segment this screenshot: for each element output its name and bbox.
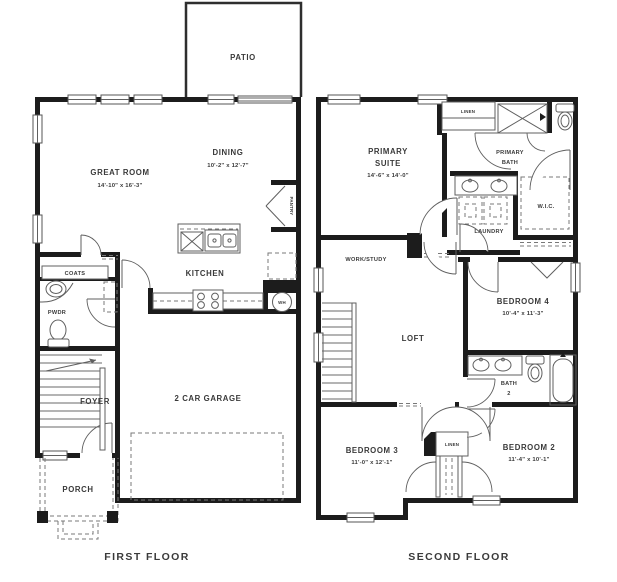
bath2-door: [467, 379, 495, 407]
powder-label: PWDR: [48, 310, 66, 316]
shower-door: [527, 133, 545, 151]
bath2-label-1: BATH: [501, 381, 517, 387]
bedroom4-label: BEDROOM 4: [497, 297, 550, 306]
bath2-label-2: 2: [507, 391, 510, 397]
garage-label: 2 CAR GARAGE: [175, 394, 242, 403]
primary-bath-label-2: BATH: [502, 160, 518, 166]
porch-step: [58, 521, 98, 539]
primary-suite-dims: 14'-6" x 14'-0": [367, 173, 409, 179]
linen-lower-label: LINEN: [445, 442, 459, 447]
dining-label: DINING: [213, 148, 244, 157]
water-heater-label: WH: [278, 300, 286, 305]
garage-entry-door: [122, 260, 150, 288]
primary-suite-door: [420, 198, 457, 235]
primary-bath-label-1: PRIMARY: [496, 150, 524, 156]
stairs-second-floor: [322, 303, 356, 402]
patio-label: PATIO: [230, 53, 256, 62]
bathtub-icon: [550, 353, 576, 405]
work-study-label: WORK/STUDY: [345, 257, 386, 263]
bedroom3-dims: 11'-0" x 12'-1": [351, 460, 392, 466]
primary-suite-label-1: PRIMARY: [368, 147, 408, 156]
bedroom2-closet-door: [462, 462, 492, 492]
wic-label: W.I.C.: [537, 204, 554, 210]
porch-label: PORCH: [62, 485, 93, 494]
great-room-label: GREAT ROOM: [90, 168, 149, 177]
bedroom4-dims: 10'-4" x 11'-3": [502, 311, 543, 317]
linen-upper-label: LINEN: [461, 109, 475, 114]
dining-dims: 10'-2" x 12'-7": [207, 163, 249, 169]
powder-toilet-icon: [48, 320, 69, 347]
pantry-door: [266, 186, 285, 226]
garage-door-outline: [131, 433, 283, 500]
powder-door: [87, 299, 115, 327]
bedroom3-label: BEDROOM 3: [346, 446, 399, 455]
great-room-dims: 14'-10" x 16'-3": [98, 183, 143, 189]
primary-suite-label-2: SUITE: [375, 159, 401, 168]
second-floor-caption: SECOND FLOOR: [408, 551, 509, 563]
first-floor-plan: WH PATIO GREAT ROOM 14'-10" x 16'-3" DIN…: [33, 3, 301, 563]
bedroom4-closet-bifold: [531, 262, 563, 278]
pantry-label: PANTRY: [289, 197, 294, 216]
coats-label: COATS: [65, 271, 86, 277]
shower-icon: [498, 104, 547, 133]
foyer-label: FOYER: [80, 397, 110, 406]
laundry-appliances: [459, 197, 507, 224]
bedroom2-dims: 11'-4" x 10'-1": [508, 457, 549, 463]
wic-closet-outline: [521, 177, 569, 229]
bedroom3-closet-door: [406, 462, 436, 492]
fridge-outline: [268, 253, 296, 279]
laundry-label: LAUNDRY: [474, 229, 503, 235]
stove-icon: [193, 290, 223, 311]
bath2-toilet-icon: [526, 356, 544, 382]
kitchen-island: [178, 224, 240, 253]
interior-walls-first: [35, 180, 301, 458]
porch-outline: [37, 458, 118, 539]
bedroom2-label: BEDROOM 2: [503, 443, 556, 452]
powder-sink-icon: [40, 281, 73, 302]
floor-plan-page: WH PATIO GREAT ROOM 14'-10" x 16'-3" DIN…: [0, 0, 617, 582]
hall-door: [424, 242, 456, 274]
floor-plan-svg: WH PATIO GREAT ROOM 14'-10" x 16'-3" DIN…: [0, 0, 617, 582]
stair-up-arrow: [46, 359, 96, 372]
kitchen-label: KITCHEN: [186, 269, 225, 278]
loft-label: LOFT: [402, 334, 425, 343]
second-floor-plan: PRIMARY SUITE 14'-6" x 14'-0" LINEN PRIM…: [314, 95, 580, 563]
bedroom4-door: [468, 262, 498, 292]
primary-toilet-icon: [556, 104, 574, 130]
primary-vanity-icon: [455, 176, 517, 195]
bedroom4-closet-rod: [520, 243, 571, 247]
patio-outline: [186, 3, 301, 99]
wic-door: [530, 150, 570, 190]
coats-door: [81, 235, 101, 255]
kitchen-counter: [104, 282, 263, 312]
first-floor-caption: FIRST FLOOR: [104, 551, 189, 563]
water-heater-icon: WH: [273, 293, 292, 312]
bath2-vanity-icon: [468, 356, 522, 375]
linen-upper-closet: [442, 102, 495, 130]
